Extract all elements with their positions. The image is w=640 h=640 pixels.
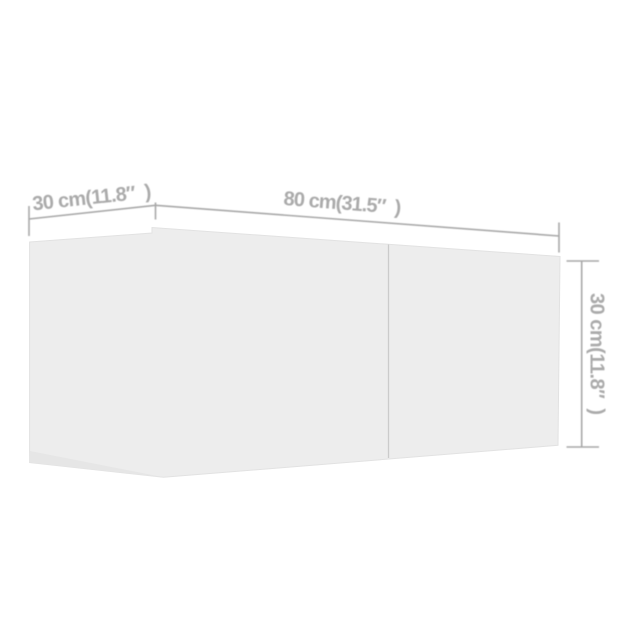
svg-text:30 cm(11.8″ ): 30 cm(11.8″ ): [586, 293, 608, 415]
